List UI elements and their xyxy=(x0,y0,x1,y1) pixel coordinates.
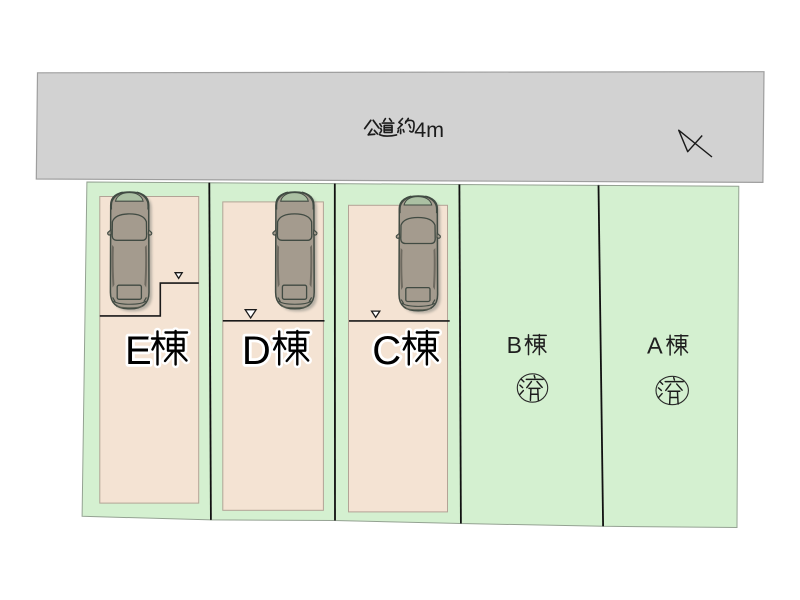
svg-text:B: B xyxy=(507,332,522,358)
svg-text:A: A xyxy=(647,332,663,358)
svg-text:4m: 4m xyxy=(414,118,444,142)
svg-text:D: D xyxy=(242,329,271,373)
svg-text:E: E xyxy=(125,329,152,373)
svg-text:C: C xyxy=(372,329,401,373)
